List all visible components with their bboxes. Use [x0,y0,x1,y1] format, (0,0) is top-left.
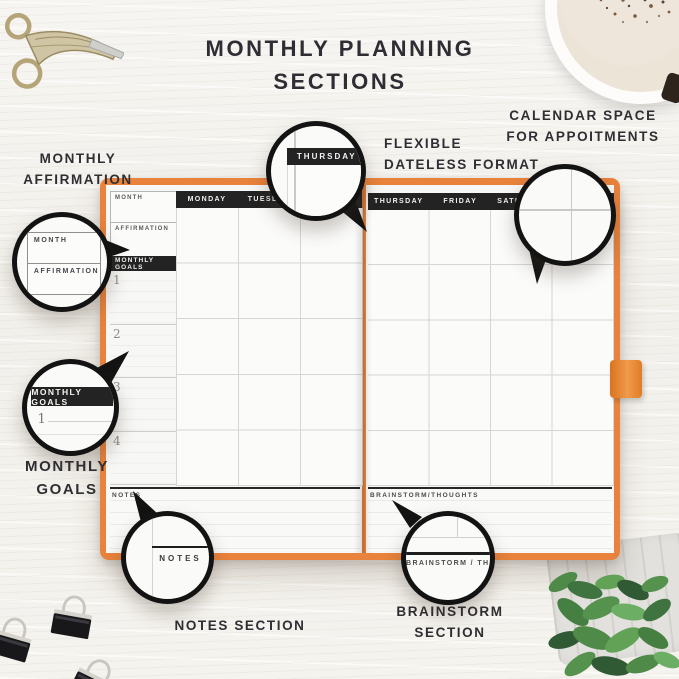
label-line: CALENDAR SPACE [488,106,678,127]
binder-clip [69,653,120,679]
label-line: DATELESS FORMAT [384,155,554,176]
callout-monthly-goals: MONTHLY GOALS 1 [22,359,119,456]
callout-goals-bar: MONTHLY GOALS [31,387,113,406]
monthly-goals-rows: 1 2 3 4 [110,271,176,485]
callout-notes-label: NOTES [159,554,202,563]
callout-divider [152,546,213,549]
month-box-label: MONTH [111,192,177,201]
callout-month-box: MONTH [27,232,101,264]
callout-divider [402,552,494,555]
goal-row: 1 [110,271,176,325]
label-monthly-goals: MONTHLY GOALS [8,455,126,502]
callout-line [48,421,112,422]
label-line: AFFIRMATION [12,170,144,191]
binder-clip [0,614,36,662]
product-image: MONTHLY PLANNING SECTIONS MONTH AFFIRMAT… [0,0,679,679]
callout-line [152,512,153,603]
binder-clips [0,575,140,679]
callout-affirmation-box: AFFIRMATION [27,263,101,295]
label-line: MONTHLY [12,149,144,170]
binder-clip [51,594,95,639]
label-brainstorm-section: BRAINSTORM SECTION [387,602,513,644]
callout-goal-number: 1 [37,412,45,427]
label-notes-section: NOTES SECTION [150,616,330,637]
plant [535,560,679,679]
weekday-friday: FRIDAY [430,198,492,205]
callout-box-wrap: MONTH AFFIRMATION [27,232,101,295]
weekday-thursday: THURSDAY [368,198,430,205]
affirmation-box-label: AFFIRMATION [111,223,177,232]
label-line: BRAINSTORM [387,602,513,623]
month-box: MONTH [110,191,178,225]
affirmation-box: AFFIRMATION [110,222,178,258]
callout-calendar-space [514,164,616,266]
coffee-cup [545,0,679,104]
calendar-grid-left [176,208,363,486]
label-line: SECTION [387,623,513,644]
notes-section-label: NOTES [110,489,360,499]
goal-row: 2 [110,325,176,379]
callout-affirmation-label: AFFIRMATION [28,264,100,275]
callout-monthly-affirmation: MONTH AFFIRMATION [12,212,112,312]
page-title: MONTHLY PLANNING SECTIONS [140,32,540,98]
planner-left-page: MONTH AFFIRMATION MONDAY TUESDAY MONTHLY… [106,185,362,553]
weekday-monday: MONDAY [176,196,238,203]
title-line-2: SECTIONS [140,65,540,98]
callout-line [294,122,296,221]
callout-line [34,434,112,435]
label-line: NOTES SECTION [150,616,330,637]
brainstorm-section-label: BRAINSTORM/THOUGHTS [368,489,612,499]
label-monthly-affirmation: MONTHLY AFFIRMATION [12,149,144,191]
callout-line [402,537,494,538]
goal-number: 1 [110,271,176,287]
label-line: MONTHLY [8,455,126,478]
callout-dateless-format: THURSDAY [266,121,366,221]
pen-loop [610,360,642,398]
title-line-1: MONTHLY PLANNING [140,32,540,65]
coffee-foam-sprinkles [557,0,679,68]
goal-number: 3 [110,378,176,394]
callout-month-label: MONTH [28,233,100,244]
goal-row: 3 [110,378,176,432]
label-calendar-space: CALENDAR SPACE FOR APPOITMENTS [488,106,678,148]
callout-line [514,209,615,211]
callout-brainstorm-label: BRAINSTORM / THOUGH [406,560,493,567]
label-line: GOALS [8,478,126,501]
callout-notes: NOTES [121,511,214,604]
callout-line [571,164,573,265]
goal-number: 4 [110,432,176,448]
callout-line [457,512,458,537]
planner-gutter [354,185,372,553]
monthly-goals-bar: MONTHLY GOALS [110,256,176,271]
scissors-icon [0,0,124,120]
label-line: FOR APPOITMENTS [488,127,678,148]
goal-number: 2 [110,325,176,341]
callout-thursday-bar: THURSDAY [287,148,366,165]
callout-brainstorm: BRAINSTORM / THOUGH [401,511,495,605]
